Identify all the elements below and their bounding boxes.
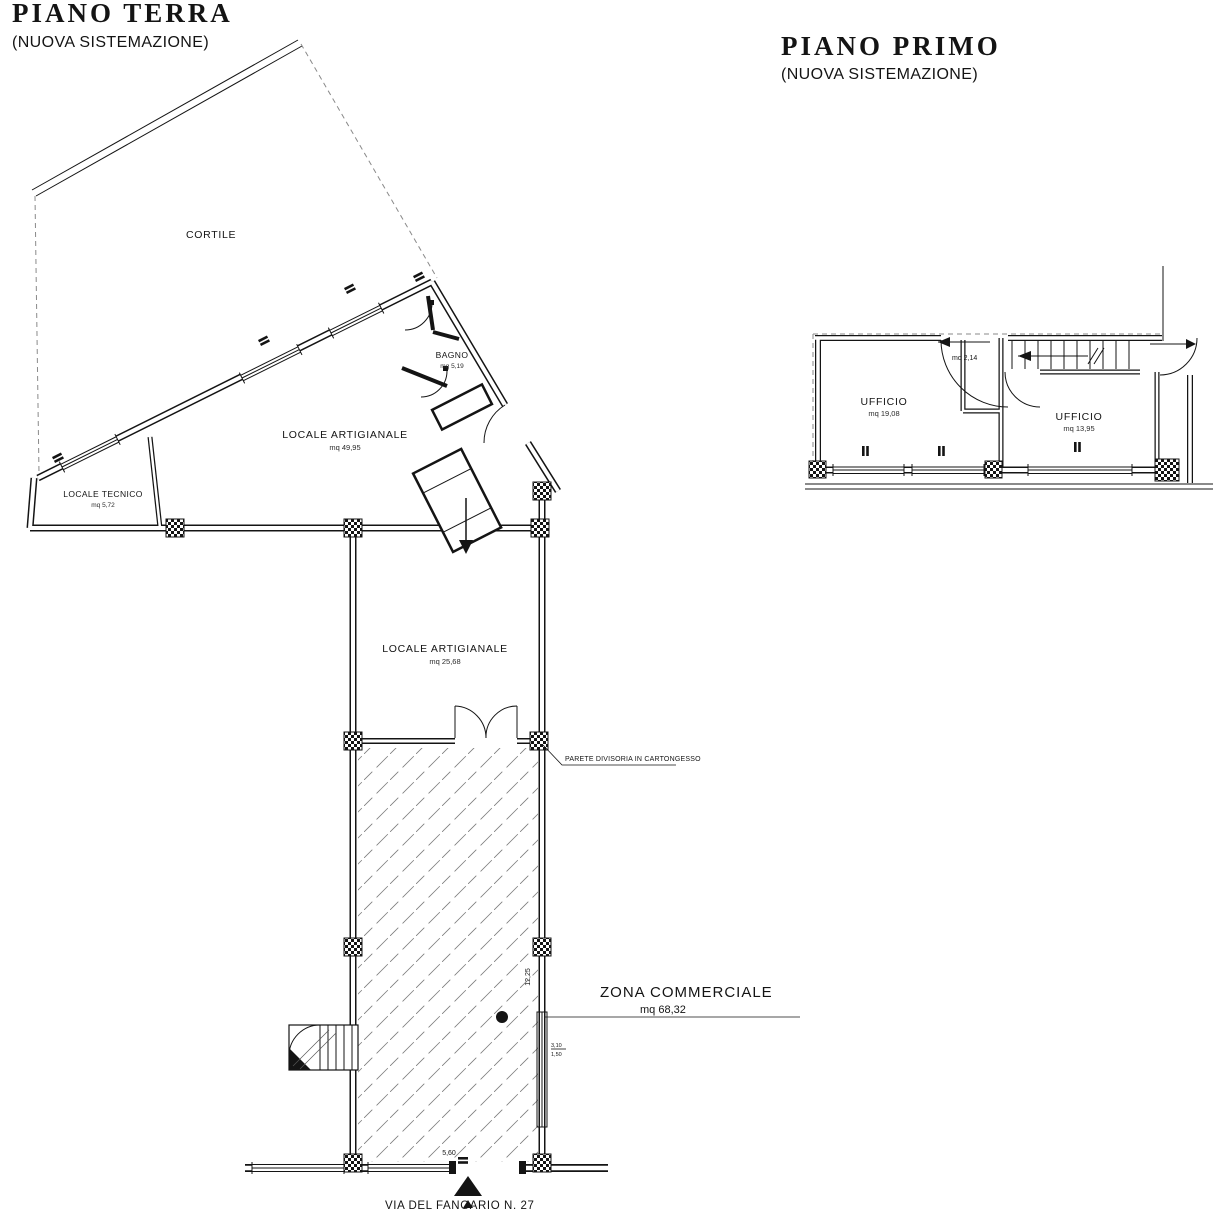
room-area-zona-commerciale: mq 68,32 <box>640 1004 686 1016</box>
entrance-arrow-icon <box>454 1176 482 1196</box>
room-label-ufficio-left: UFFICIO <box>861 396 908 408</box>
room-area-artigianale-wing: mq 49,95 <box>329 443 360 452</box>
first-floor-staircase <box>1012 338 1197 375</box>
room-label-zona-commerciale: ZONA COMMERCIALE <box>600 984 773 1001</box>
dim-window-top-label: 3,10 <box>551 1043 562 1049</box>
floor-plan-drawing: PIANO TERRA (NUOVA SISTEMAZIONE) CORTILE <box>0 0 1213 1217</box>
ground-floor-title: PIANO TERRA <box>12 0 233 28</box>
first-floor-title: PIANO PRIMO <box>781 31 1001 61</box>
external-staircase <box>289 1025 358 1070</box>
column <box>809 461 826 478</box>
room-label-cortile: CORTILE <box>186 229 236 241</box>
column <box>344 1154 362 1172</box>
window <box>252 1162 344 1174</box>
room-area-ufficio-right: mq 13,95 <box>1063 424 1094 433</box>
double-door <box>455 706 517 738</box>
zona-commerciale-annotation: ZONA COMMERCIALE mq 68,32 <box>545 984 800 1017</box>
room-area-bagno: mq 5,19 <box>440 363 464 370</box>
zona-commerciale-hatch <box>358 748 538 1162</box>
door-swing-arc <box>484 405 505 443</box>
room-label-tecnico: LOCALE TECNICO <box>63 489 143 499</box>
window <box>912 464 984 476</box>
first-floor-plan: PIANO PRIMO (NUOVA SISTEMAZIONE) <box>781 31 1213 489</box>
room-label-artigianale-wing: LOCALE ARTIGIANALE <box>282 429 408 441</box>
room-label-ufficio-right: UFFICIO <box>1056 411 1103 423</box>
column <box>166 519 184 537</box>
room-area-ufficio-left: mq 19,08 <box>868 409 899 418</box>
column <box>985 461 1002 478</box>
window <box>368 1162 450 1174</box>
partition-annotation: PARETE DIVISORIA IN CARTONGESSO <box>543 745 701 765</box>
window <box>1028 464 1132 476</box>
room-label-bagno: BAGNO <box>436 350 469 360</box>
window <box>833 464 904 476</box>
window <box>328 303 383 339</box>
dim-depth-label: 12,25 <box>525 968 532 986</box>
dim-window-right: 3,10 1,50 <box>551 1043 566 1058</box>
window <box>59 434 120 472</box>
arrow-icon <box>1186 339 1196 349</box>
column <box>531 519 549 537</box>
room-label-artigianale-mid: LOCALE ARTIGIANALE <box>382 643 508 655</box>
column <box>533 938 551 956</box>
column <box>344 938 362 956</box>
shower-tray <box>432 384 492 429</box>
street-label: VIA DEL FANGARIO N. 27 <box>385 1200 535 1212</box>
column-dot <box>496 1011 508 1023</box>
room-area-disimpegno: mq 2,14 <box>952 355 977 362</box>
partition-note-label: PARETE DIVISORIA IN CARTONGESSO <box>565 756 701 763</box>
room-area-artigianale-mid: mq 25,68 <box>429 657 460 666</box>
dim-width-label: 5,60 <box>442 1150 456 1157</box>
window <box>239 344 302 383</box>
column <box>1155 459 1179 481</box>
column <box>344 519 362 537</box>
door-swing-arc <box>455 706 486 738</box>
room-area-tecnico: mq 5,72 <box>91 502 115 509</box>
dimension-marks <box>862 442 1081 456</box>
door-swing-arc <box>486 706 517 738</box>
plan-sheet: PIANO TERRA (NUOVA SISTEMAZIONE) CORTILE <box>0 0 1213 1217</box>
ground-floor-plan: PIANO TERRA (NUOVA SISTEMAZIONE) CORTILE <box>12 0 800 1212</box>
first-floor-subtitle: (NUOVA SISTEMAZIONE) <box>781 66 978 83</box>
dim-window-bottom-label: 1,50 <box>551 1052 562 1058</box>
door-swing-arc <box>1005 372 1040 407</box>
column <box>533 482 551 500</box>
column <box>533 1154 551 1172</box>
door-swing-arc <box>421 371 447 397</box>
ramp-symbol <box>413 449 501 554</box>
column <box>344 732 362 750</box>
ground-floor-subtitle: (NUOVA SISTEMAZIONE) <box>12 34 209 51</box>
door-swing-arc <box>941 340 1008 407</box>
site-boundary <box>32 40 437 474</box>
